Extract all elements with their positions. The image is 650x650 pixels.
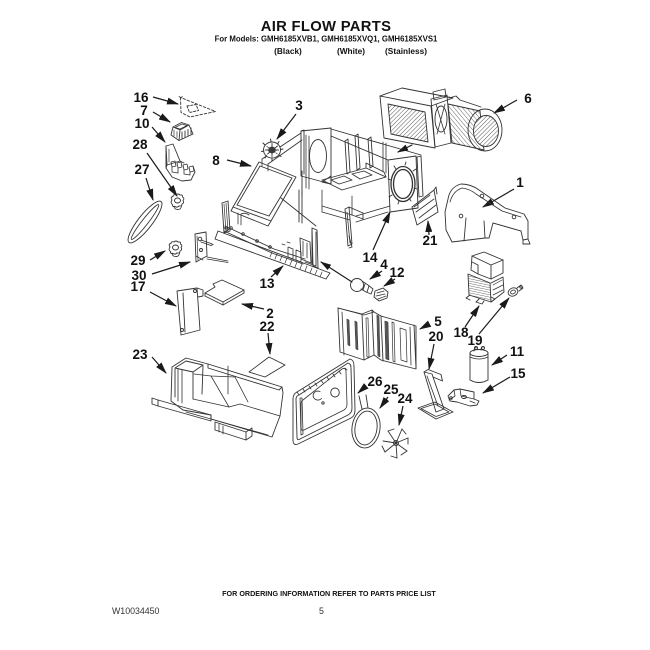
svg-text:4: 4 — [380, 257, 388, 272]
svg-text:5: 5 — [319, 606, 324, 616]
svg-text:10: 10 — [134, 116, 149, 131]
svg-text:27: 27 — [134, 162, 149, 177]
svg-text:23: 23 — [132, 347, 148, 362]
svg-text:29: 29 — [130, 253, 145, 268]
svg-text:28: 28 — [132, 137, 148, 152]
svg-text:8: 8 — [212, 153, 220, 168]
svg-text:1: 1 — [516, 175, 524, 190]
svg-text:For Models: GMH6185XVB1, GMH61: For Models: GMH6185XVB1, GMH6185XVQ1, GM… — [215, 35, 438, 44]
svg-text:13: 13 — [259, 276, 275, 291]
svg-text:AIR FLOW PARTS: AIR FLOW PARTS — [261, 19, 392, 35]
svg-text:5: 5 — [434, 314, 442, 329]
svg-text:21: 21 — [422, 233, 438, 248]
svg-text:11: 11 — [510, 344, 525, 359]
svg-text:12: 12 — [389, 265, 404, 280]
svg-text:FOR ORDERING INFORMATION REFER: FOR ORDERING INFORMATION REFER TO PARTS … — [222, 589, 436, 598]
svg-text:19: 19 — [467, 333, 482, 348]
svg-text:(Stainless): (Stainless) — [385, 46, 427, 56]
svg-text:(White): (White) — [337, 46, 365, 56]
svg-text:15: 15 — [510, 366, 526, 381]
svg-text:24: 24 — [397, 391, 413, 406]
svg-text:14: 14 — [362, 250, 378, 265]
svg-text:17: 17 — [130, 279, 145, 294]
svg-text:20: 20 — [428, 329, 443, 344]
svg-text:22: 22 — [259, 319, 274, 334]
svg-text:W10034450: W10034450 — [112, 606, 160, 616]
svg-text:6: 6 — [524, 91, 532, 106]
svg-text:3: 3 — [295, 98, 303, 113]
svg-text:26: 26 — [367, 374, 383, 389]
svg-text:(Black): (Black) — [274, 46, 302, 56]
